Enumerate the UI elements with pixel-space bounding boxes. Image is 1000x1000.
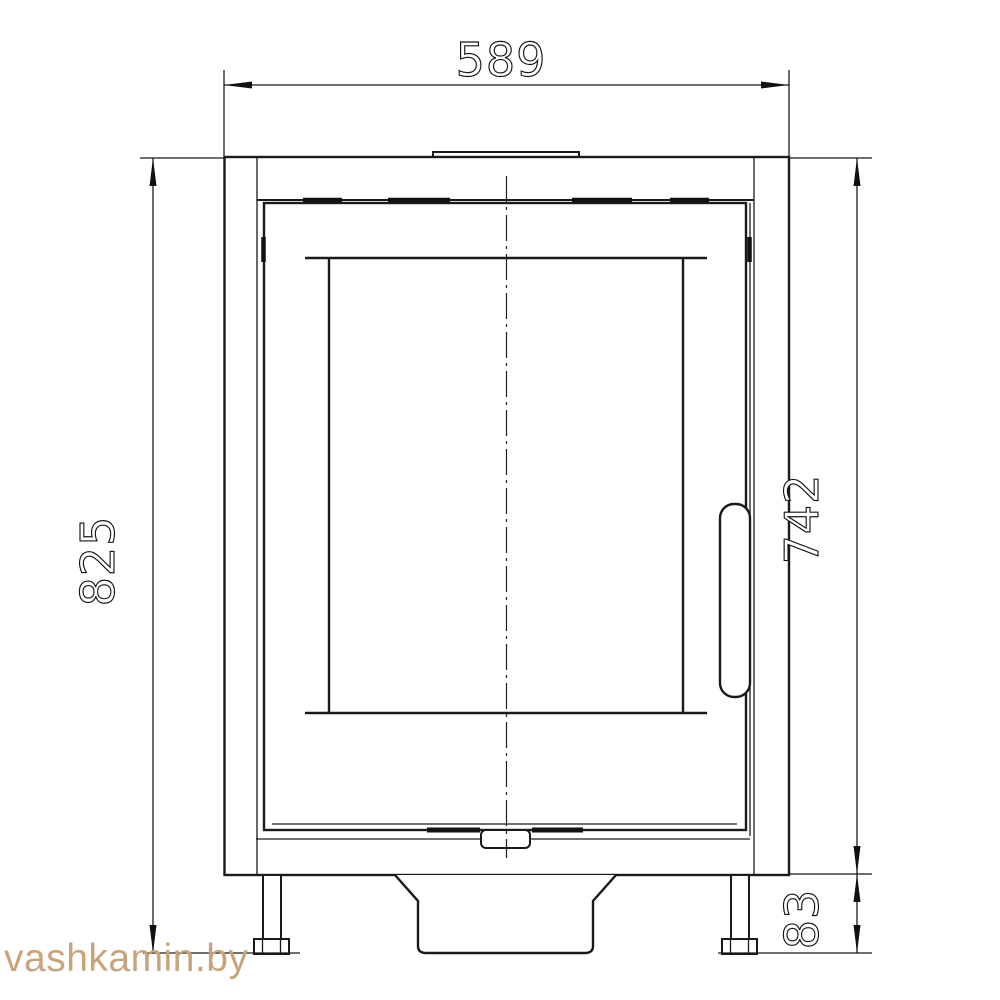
door-handle <box>720 504 750 697</box>
arrow-up <box>150 158 157 186</box>
arrow-down <box>854 925 861 953</box>
door-outline <box>264 203 746 830</box>
arrow-left <box>224 82 252 89</box>
ash-pan <box>395 875 616 953</box>
dimension-top-width: 589 <box>224 33 789 156</box>
right-foot <box>722 939 757 954</box>
left-leg <box>263 875 281 939</box>
door-latch-tab <box>481 830 530 848</box>
dimension-label-body-height: 742 <box>775 474 829 565</box>
dimension-label-base-height: 83 <box>775 889 829 950</box>
dimension-label-height: 825 <box>71 516 125 607</box>
arrow-right <box>761 82 789 89</box>
arrow-down <box>854 846 861 874</box>
drawing-canvas: 589 825 742 83 vashkamin.by <box>0 0 1000 1000</box>
left-foot <box>254 939 289 954</box>
arrow-up <box>854 874 861 902</box>
right-leg <box>731 875 749 939</box>
arrow-up <box>854 158 861 186</box>
dimension-label-width: 589 <box>456 33 547 87</box>
watermark-text: vashkamin.by <box>4 937 248 980</box>
stove-technical-drawing: 589 825 742 83 vashkamin.by <box>0 0 1000 1000</box>
